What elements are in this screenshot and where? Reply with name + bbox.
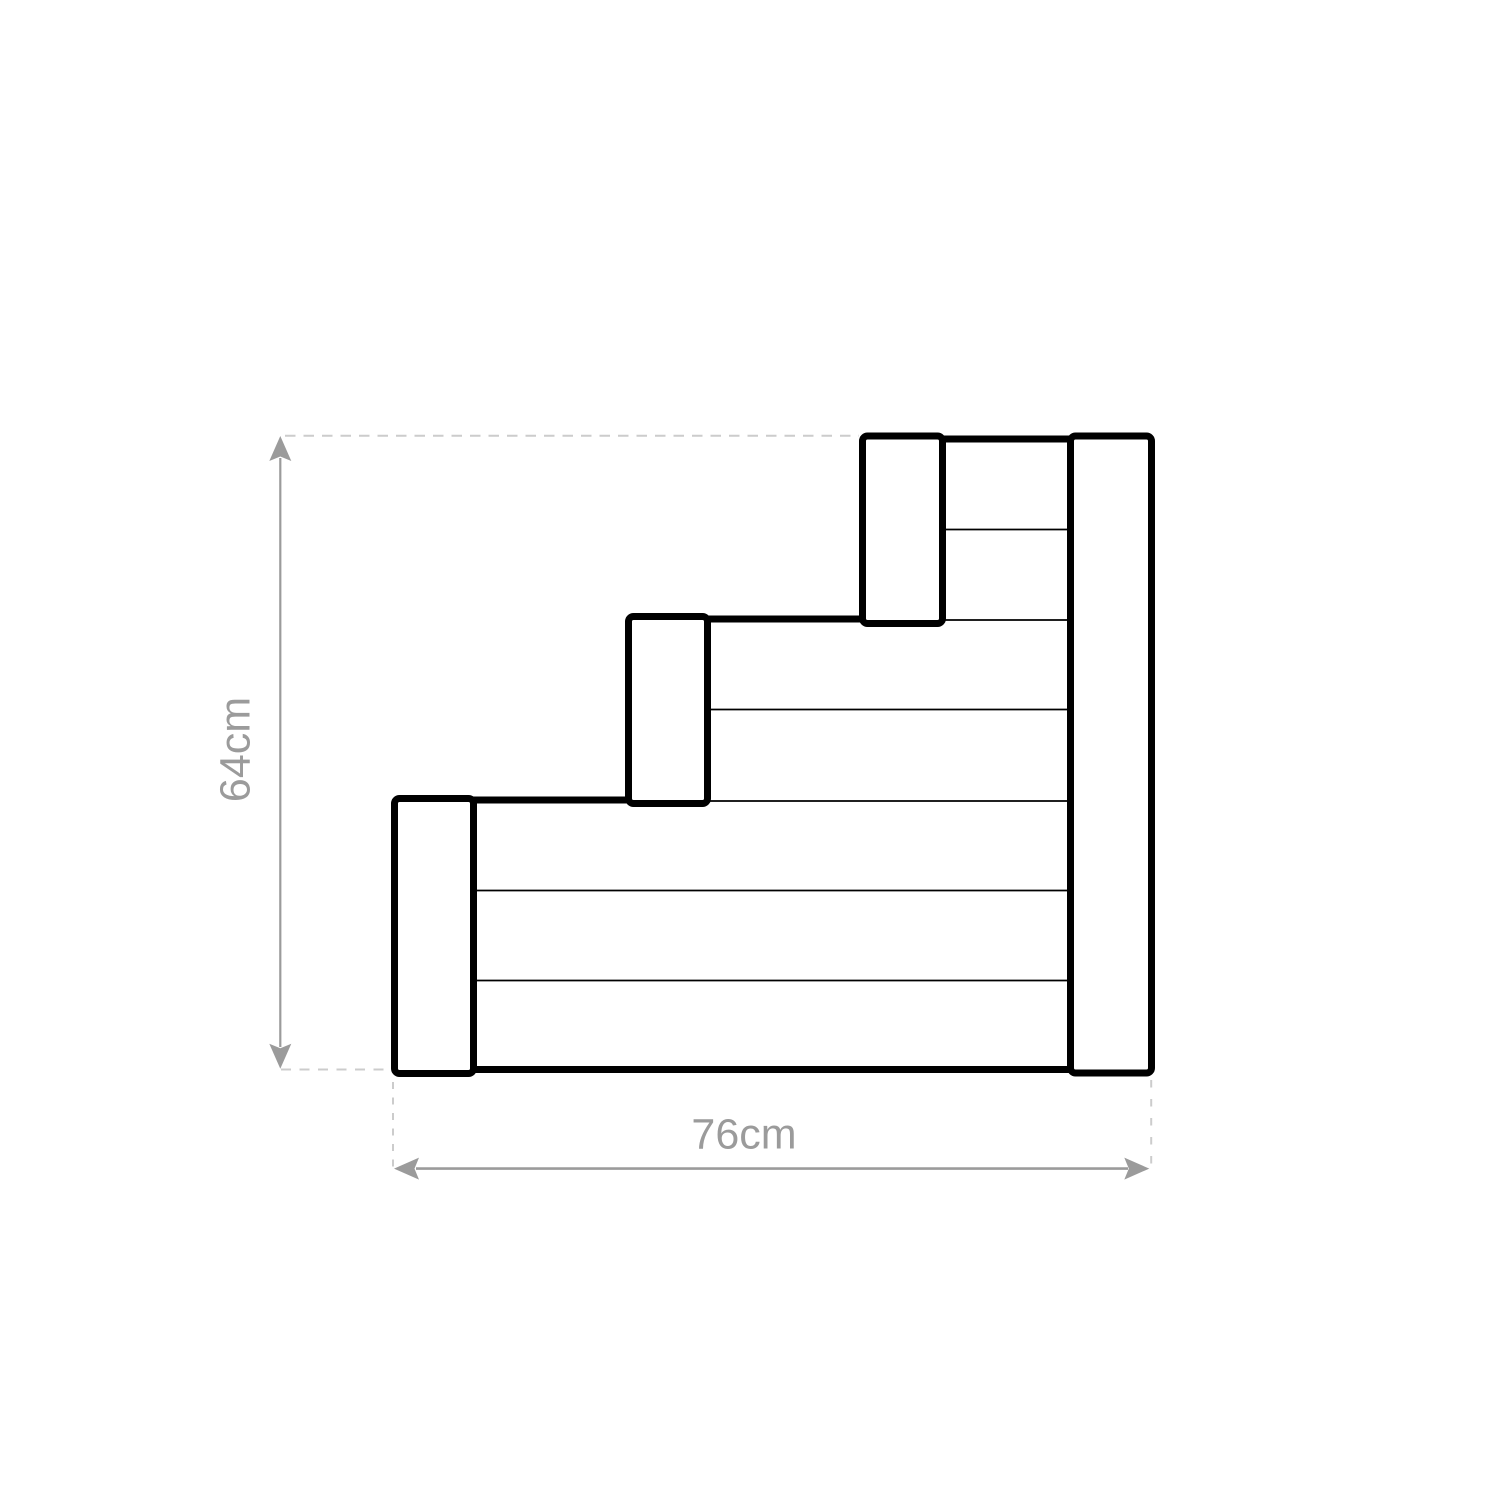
svg-text:64cm: 64cm [212, 697, 260, 802]
svg-text:76cm: 76cm [691, 1111, 796, 1159]
